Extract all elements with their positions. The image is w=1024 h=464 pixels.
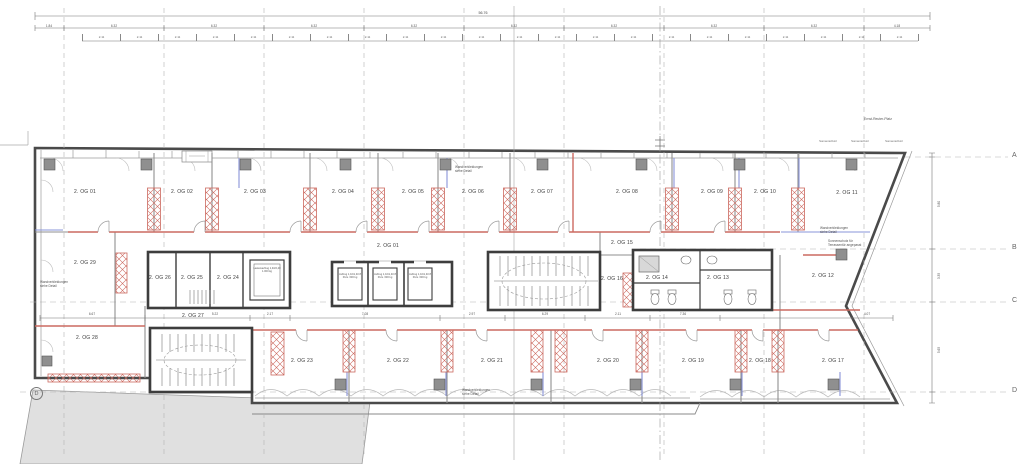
dim-segment: 2.11 [880,34,918,41]
floor-plan-drawing [0,0,1024,464]
cladding-note: Wandverkleidungen siehe Detail [40,281,76,288]
dimension-segment: 6.32 [611,24,617,28]
dimension-segment: 1.84 [46,24,52,28]
dimension-segment: 6.32 [711,24,717,28]
dim-segment: 2.11 [690,34,728,41]
dim-segment: 2.11 [310,34,348,41]
room-label-og03: 2. OG 03 [244,189,266,195]
dimension-corridor: 6.67 [89,312,95,316]
dimension-segment: 6.32 [811,24,817,28]
dim-segment: 2.11 [424,34,462,41]
room-label-og27: 2. OG 27 [182,313,204,319]
room-label-og29: 2. OG 29 [74,260,96,266]
dimension-vertical: 5.80 [937,201,941,207]
sun-shade-note: Sonnenschutz [885,139,903,143]
room-label-og12: 2. OG 12 [812,273,834,279]
room-label-og14: 2. OG 14 [646,275,668,281]
core-main-stair [488,252,600,310]
dimension-segment: 6.32 [511,24,517,28]
sun-shade-note: Sonnenschutz [819,139,837,143]
dimension-vertical: 3.35 [937,273,941,279]
dim-segment: 2.11 [196,34,234,41]
dim-segment: 2.11 [538,34,576,41]
sun-shade-detail-note: Sonnenschutz für Terrassentür angepasst [828,240,864,247]
dim-segment: 2.11 [120,34,158,41]
freight-elevator-label: Lastenaufzug 1,40/2,40 1.000 kg [252,268,282,274]
grid-axis-b: B [1012,244,1017,251]
dim-segment: 2.11 [348,34,386,41]
grid-axis-c: C [1012,297,1017,304]
dimension-corridor: 7.08 [362,312,368,316]
dimension-segment: 6.32 [411,24,417,28]
grid-axis-d: D [1012,387,1017,394]
cladding-note: Wandverkleidungen siehe Detail [820,227,856,234]
section-marker [655,136,665,150]
room-label-og13: 2. OG 13 [707,275,729,281]
dimension-vertical: 5.65 [937,347,941,353]
room-label-og11: 2. OG 11 [836,190,858,196]
cladding-note: Wandverkleidungen siehe Detail [455,166,491,173]
room-label-og17: 2. OG 17 [822,358,844,364]
elevator-label: Aufzug 1,10/1,40 8 Pers. 630 kg [409,274,431,280]
room-label-og19: 2. OG 19 [682,358,704,364]
dimension-corridor: 7.36 [680,312,686,316]
cladding-note: Wandverkleidungen siehe Detail [462,389,498,396]
dimension-corridor: 6.29 [542,312,548,316]
room-label-corridor-og01: 2. OG 01 [377,243,399,249]
room-label-og18: 2. OG 18 [749,358,771,364]
room-label-og26: 2. OG 26 [149,275,171,281]
dim-segment: 2.11 [766,34,804,41]
dim-segment: 2.11 [652,34,690,41]
room-label-og09: 2. OG 09 [701,189,723,195]
grid-axis-d-circle: D [30,387,43,400]
dimension-corridor: 4.07 [864,312,870,316]
dim-segment: 2.11 [576,34,614,41]
room-label-og20: 2. OG 20 [597,358,619,364]
dimension-corridor: 2.11 [615,312,621,316]
room-label-og07: 2. OG 07 [531,189,553,195]
room-label-og15: 2. OG 15 [611,240,633,246]
room-label-og04: 2. OG 04 [332,189,354,195]
room-label-og25: 2. OG 25 [181,275,203,281]
core-elevator-bank [332,261,452,306]
floor-plan-canvas: 56.76 1.84 6.32 6.32 6.32 6.32 6.32 6.32… [0,0,1024,464]
dimension-segment: 4.18 [894,24,900,28]
dimension-total: 56.76 [479,11,488,15]
room-label-og08: 2. OG 08 [616,189,638,195]
room-label-og16: 2. OG 16 [601,276,623,282]
room-label-og22: 2. OG 22 [387,358,409,364]
grid-axis-a: A [1012,152,1017,159]
dim-segment: 2.11 [728,34,766,41]
dim-segment: 2.11 [386,34,424,41]
dim-segment: 2.11 [158,34,196,41]
street-label: Ernst-Reuter-Platz [864,117,892,121]
dimension-corridor: 2.97 [469,312,475,316]
room-label-og24: 2. OG 24 [217,275,239,281]
dim-segment: 2.11 [462,34,500,41]
dim-segment: 2.11 [842,34,880,41]
room-label-og23: 2. OG 23 [291,358,313,364]
room-label-og02: 2. OG 02 [171,189,193,195]
elevator-label: Aufzug 1,10/1,40 8 Pers. 630 kg [339,274,361,280]
dim-segment: 2.11 [272,34,310,41]
dimension-corridor: 2.17 [267,312,273,316]
sun-shade-note: Sonnenschutz [851,139,869,143]
room-label-og01: 2. OG 01 [74,189,96,195]
dimension-corridor: 5.22 [212,312,218,316]
dimension-segment: 6.32 [111,24,117,28]
dimension-segment: 6.32 [311,24,317,28]
room-label-og21: 2. OG 21 [481,358,503,364]
dim-segment: 2.11 [804,34,842,41]
dim-segment: 2.11 [614,34,652,41]
elevator-label: Aufzug 1,10/1,40 8 Pers. 630 kg [374,274,396,280]
room-label-og28: 2. OG 28 [76,335,98,341]
room-label-og05: 2. OG 05 [402,189,424,195]
dimension-segment: 6.32 [211,24,217,28]
dim-segment: 2.11 [82,34,120,41]
room-label-og06: 2. OG 06 [462,189,484,195]
room-label-og10: 2. OG 10 [754,189,776,195]
dim-segment: 2.11 [234,34,272,41]
dimension-row-small: 2.112.112.112.112.112.112.112.112.112.11… [82,34,919,41]
dim-segment: 2.11 [500,34,538,41]
core-lower-stair [150,328,252,392]
